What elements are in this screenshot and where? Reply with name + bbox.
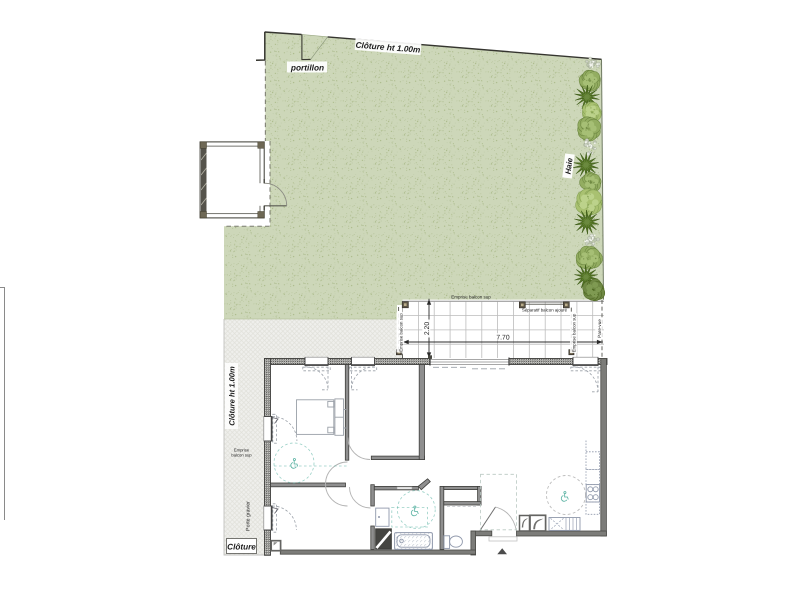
svg-text:7.70: 7.70 [496, 335, 509, 342]
svg-text:2.20: 2.20 [424, 322, 431, 335]
svg-text:Porte gravier: Porte gravier [246, 501, 252, 531]
svg-text:balcon sup: balcon sup [231, 453, 252, 458]
svg-text:Emprise balcon sup: Emprise balcon sup [572, 313, 577, 352]
svg-text:Emprise balcon sup: Emprise balcon sup [399, 313, 404, 352]
svg-text:Clôture: Clôture [227, 542, 256, 551]
svg-text:Clôture ht 1.00m: Clôture ht 1.00m [228, 366, 237, 426]
svg-text:portillon: portillon [290, 62, 324, 72]
svg-text:Emprise balcon sup: Emprise balcon sup [451, 295, 491, 300]
svg-text:Séparatif balcon ajouré: Séparatif balcon ajouré [522, 308, 568, 313]
svg-text:Pare-vue: Pare-vue [597, 319, 602, 338]
